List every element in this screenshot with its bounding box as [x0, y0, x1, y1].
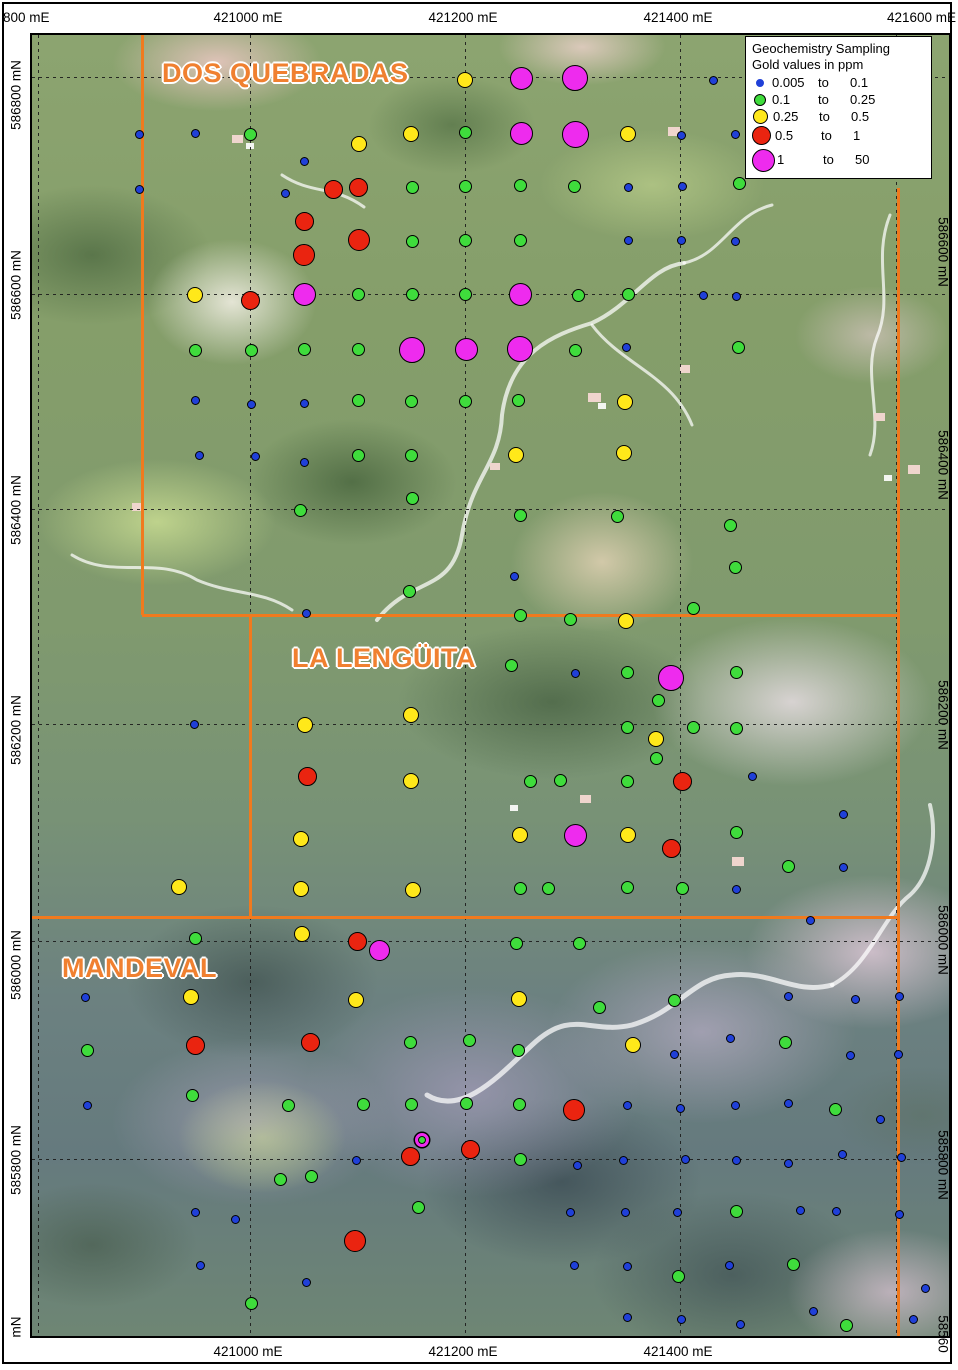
- sample-point-b[interactable]: [731, 1101, 740, 1110]
- sample-point-y[interactable]: [171, 879, 187, 895]
- sample-point-r[interactable]: [293, 244, 315, 266]
- sample-point-g[interactable]: [406, 492, 419, 505]
- sample-point-g[interactable]: [687, 602, 700, 615]
- sample-point-g[interactable]: [406, 288, 419, 301]
- sample-point-g[interactable]: [672, 1270, 685, 1283]
- sample-point-g[interactable]: [305, 1170, 318, 1183]
- sample-point-y[interactable]: [457, 72, 473, 88]
- sample-point-r[interactable]: [298, 767, 317, 786]
- sample-point-b[interactable]: [681, 1155, 690, 1164]
- sample-point-r[interactable]: [344, 1230, 366, 1252]
- axis-label-northing: mN: [9, 1317, 24, 1338]
- sample-point-y[interactable]: [297, 717, 313, 733]
- sample-point-b[interactable]: [300, 399, 309, 408]
- sample-point-y[interactable]: [403, 773, 419, 789]
- sample-point-g[interactable]: [729, 561, 742, 574]
- sample-point-b[interactable]: [670, 1050, 679, 1059]
- sample-point-b[interactable]: [623, 1101, 632, 1110]
- legend-subtitle: Gold values in ppm: [752, 57, 925, 73]
- axis-label-northing: 585800 mN: [936, 1130, 951, 1200]
- legend-to-value: 0.25: [850, 92, 875, 107]
- sample-point-b[interactable]: [677, 236, 686, 245]
- legend-to-word: to: [818, 75, 850, 90]
- sample-point-m[interactable]: [510, 122, 533, 145]
- sample-point-g[interactable]: [564, 613, 577, 626]
- sample-point-g[interactable]: [569, 344, 582, 357]
- axis-label-northing: 586600 mN: [936, 217, 951, 287]
- sample-point-y[interactable]: [293, 881, 309, 897]
- sample-point-y[interactable]: [294, 926, 310, 942]
- sample-point-y[interactable]: [351, 136, 367, 152]
- sample-point-b[interactable]: [784, 1159, 793, 1168]
- sample-point-g[interactable]: [621, 721, 634, 734]
- sample-point-g[interactable]: [513, 1098, 526, 1111]
- sample-point-y[interactable]: [403, 126, 419, 142]
- axis-label-northing: 586000 mN: [9, 930, 24, 1000]
- sample-point-g[interactable]: [282, 1099, 295, 1112]
- sample-point-b[interactable]: [851, 995, 860, 1004]
- sample-point-g[interactable]: [510, 937, 523, 950]
- sample-point-g[interactable]: [505, 659, 518, 672]
- sample-point-b[interactable]: [302, 609, 311, 618]
- legend-swatch-blue-icon: [756, 79, 764, 87]
- legend-row: 0.25 to 0.5: [752, 109, 925, 124]
- sample-point-y[interactable]: [512, 827, 528, 843]
- sample-point-m[interactable]: [455, 338, 478, 361]
- legend-swatch-green-icon: [754, 94, 766, 106]
- sample-point-g[interactable]: [622, 288, 635, 301]
- sample-point-g[interactable]: [652, 694, 665, 707]
- axis-label-easting: 421200 mE: [428, 1344, 497, 1359]
- claim-boundary-line: [141, 35, 144, 615]
- sample-point-b[interactable]: [838, 1150, 847, 1159]
- sample-point-g[interactable]: [514, 509, 527, 522]
- sample-point-g[interactable]: [294, 504, 307, 517]
- sample-point-g[interactable]: [724, 519, 737, 532]
- sample-point-b[interactable]: [83, 1101, 92, 1110]
- legend-to-value: 1: [853, 128, 860, 143]
- sample-point-m[interactable]: [399, 337, 425, 363]
- sample-point-r[interactable]: [186, 1036, 205, 1055]
- sample-point-g[interactable]: [554, 774, 567, 787]
- sample-point-g[interactable]: [730, 826, 743, 839]
- sample-point-b[interactable]: [191, 1208, 200, 1217]
- sample-point-g[interactable]: [405, 1098, 418, 1111]
- sample-point-y[interactable]: [618, 613, 634, 629]
- sample-point-g[interactable]: [787, 1258, 800, 1271]
- sample-point-r[interactable]: [349, 178, 368, 197]
- area-label: MANDEVAL: [62, 953, 217, 984]
- sample-point-r[interactable]: [662, 839, 681, 858]
- sample-point-g[interactable]: [352, 394, 365, 407]
- legend-to-word: to: [823, 152, 855, 167]
- sample-point-b[interactable]: [302, 1278, 311, 1287]
- sample-point-m[interactable]: [562, 121, 589, 148]
- legend-to-word: to: [819, 109, 851, 124]
- sample-point-y[interactable]: [348, 992, 364, 1008]
- sample-point-b[interactable]: [622, 343, 631, 352]
- sample-point-g[interactable]: [840, 1319, 853, 1332]
- sample-point-g[interactable]: [573, 937, 586, 950]
- sample-point-b[interactable]: [732, 1156, 741, 1165]
- sample-point-y[interactable]: [511, 991, 527, 1007]
- legend-from: 0.25: [773, 109, 819, 124]
- sample-point-b[interactable]: [191, 396, 200, 405]
- sample-point-y[interactable]: [620, 827, 636, 843]
- sample-point-g[interactable]: [459, 126, 472, 139]
- sample-point-m[interactable]: [293, 283, 316, 306]
- sample-point-g[interactable]: [687, 721, 700, 734]
- sample-point-y[interactable]: [617, 394, 633, 410]
- sample-point-g[interactable]: [460, 1097, 473, 1110]
- axis-label-easting: 421000 mE: [213, 1344, 282, 1359]
- grid-line-horizontal: [32, 509, 949, 510]
- area-label: LA LENGÜITA: [292, 643, 476, 674]
- sample-point-g[interactable]: [568, 180, 581, 193]
- sample-point-g[interactable]: [245, 1297, 258, 1310]
- sample-point-b[interactable]: [731, 130, 740, 139]
- sample-point-b[interactable]: [894, 1050, 903, 1059]
- grid-line-vertical: [38, 35, 39, 1336]
- sample-point-b[interactable]: [570, 1261, 579, 1270]
- legend-from: 0.1: [772, 92, 818, 107]
- sample-point-g[interactable]: [611, 510, 624, 523]
- sample-point-m[interactable]: [562, 65, 588, 91]
- axis-label-easting: 421400 mE: [643, 1344, 712, 1359]
- sample-point-g[interactable]: [514, 179, 527, 192]
- sample-point-g[interactable]: [357, 1098, 370, 1111]
- sample-point-g[interactable]: [245, 344, 258, 357]
- legend: Geochemistry Sampling Gold values in ppm…: [745, 36, 932, 179]
- legend-from: 0.005: [772, 75, 818, 90]
- sample-point-b[interactable]: [677, 1315, 686, 1324]
- sample-point-g[interactable]: [572, 289, 585, 302]
- sample-point-b[interactable]: [191, 129, 200, 138]
- sample-point-b[interactable]: [846, 1051, 855, 1060]
- sample-point-r[interactable]: [301, 1033, 320, 1052]
- map-canvas[interactable]: DOS QUEBRADASLA LENGÜITAMANDEVAL: [30, 33, 951, 1338]
- sample-point-g[interactable]: [403, 585, 416, 598]
- sample-point-b[interactable]: [732, 292, 741, 301]
- claim-boundary-line: [249, 615, 252, 917]
- legend-from: 1: [777, 152, 823, 167]
- sample-point-b[interactable]: [677, 131, 686, 140]
- axis-label-northing: 586000 mN: [936, 905, 951, 975]
- sample-point-g[interactable]: [404, 1036, 417, 1049]
- legend-row: 0.005 to 0.1: [752, 75, 925, 90]
- sample-point-b[interactable]: [190, 720, 199, 729]
- sample-point-b[interactable]: [895, 992, 904, 1001]
- sample-point-g[interactable]: [405, 449, 418, 462]
- sample-point-g[interactable]: [733, 177, 746, 190]
- geochemistry-map-page: { "colors":{"boundary_orange":"#f07a1e",…: [0, 0, 958, 1370]
- sample-point-r[interactable]: [324, 180, 343, 199]
- sample-point-y[interactable]: [187, 287, 203, 303]
- sample-point-g[interactable]: [621, 666, 634, 679]
- sample-point-g[interactable]: [459, 395, 472, 408]
- legend-from: 0.5: [775, 128, 821, 143]
- sample-point-g[interactable]: [514, 882, 527, 895]
- sample-point-g[interactable]: [782, 860, 795, 873]
- sample-point-b[interactable]: [731, 237, 740, 246]
- sample-point-g[interactable]: [668, 994, 681, 1007]
- axis-label-northing: 586400 mN: [936, 430, 951, 500]
- sample-point-r[interactable]: [348, 932, 367, 951]
- sample-point-g[interactable]: [829, 1103, 842, 1116]
- sample-point-b[interactable]: [510, 572, 519, 581]
- sample-point-g[interactable]: [244, 128, 257, 141]
- sample-point-g[interactable]: [81, 1044, 94, 1057]
- grid-line-horizontal: [32, 941, 949, 942]
- sample-point-r[interactable]: [241, 291, 260, 310]
- sample-point-b[interactable]: [300, 157, 309, 166]
- sample-point-g[interactable]: [524, 775, 537, 788]
- sample-point-s[interactable]: [415, 1133, 429, 1147]
- axis-label-easting: 421000 mE: [213, 10, 282, 25]
- sample-point-y[interactable]: [403, 707, 419, 723]
- legend-row: 1 to 50: [752, 147, 925, 172]
- sample-point-r[interactable]: [295, 212, 314, 231]
- sample-point-b[interactable]: [806, 916, 815, 925]
- sample-point-b[interactable]: [619, 1156, 628, 1165]
- sample-point-g[interactable]: [650, 752, 663, 765]
- legend-row: 0.5 to 1: [752, 126, 925, 145]
- sample-point-b[interactable]: [748, 772, 757, 781]
- map-imagery-trails: [32, 35, 951, 1338]
- sample-point-b[interactable]: [784, 1099, 793, 1108]
- sample-point-g[interactable]: [405, 395, 418, 408]
- axis-label-northing: 58560: [936, 1315, 951, 1353]
- sample-point-b[interactable]: [699, 291, 708, 300]
- axis-label-northing: 586400 mN: [9, 475, 24, 545]
- grid-line-horizontal: [32, 294, 949, 295]
- sample-point-b[interactable]: [676, 1104, 685, 1113]
- sample-point-b[interactable]: [839, 863, 848, 872]
- legend-title: Geochemistry Sampling: [752, 41, 925, 57]
- sample-point-g[interactable]: [412, 1201, 425, 1214]
- sample-point-b[interactable]: [621, 1208, 630, 1217]
- legend-to-value: 0.1: [850, 75, 868, 90]
- sample-point-b[interactable]: [251, 452, 260, 461]
- sample-point-m[interactable]: [510, 67, 533, 90]
- legend-swatch-magenta-icon: [752, 149, 775, 172]
- sample-point-m[interactable]: [369, 940, 390, 961]
- sample-point-m[interactable]: [564, 824, 587, 847]
- sample-point-y[interactable]: [620, 126, 636, 142]
- grid-line-horizontal: [32, 724, 949, 725]
- sample-point-g[interactable]: [186, 1089, 199, 1102]
- sample-point-b[interactable]: [623, 1313, 632, 1322]
- sample-point-b[interactable]: [135, 185, 144, 194]
- axis-label-easting: 421600 mE: [887, 10, 956, 25]
- sample-point-y[interactable]: [625, 1037, 641, 1053]
- axis-label-northing: 586200 mN: [9, 695, 24, 765]
- sample-point-m[interactable]: [658, 665, 684, 691]
- sample-point-y[interactable]: [405, 882, 421, 898]
- sample-point-g[interactable]: [512, 394, 525, 407]
- sample-point-g[interactable]: [730, 666, 743, 679]
- claim-boundary-line: [897, 188, 900, 1338]
- axis-label-easting: 421200 mE: [428, 10, 497, 25]
- sample-point-b[interactable]: [135, 130, 144, 139]
- sample-point-y[interactable]: [648, 731, 664, 747]
- sample-point-b[interactable]: [623, 1262, 632, 1271]
- sample-point-b[interactable]: [784, 992, 793, 1001]
- legend-to-value: 0.5: [851, 109, 869, 124]
- legend-row: 0.1 to 0.25: [752, 92, 925, 107]
- sample-point-g[interactable]: [459, 288, 472, 301]
- sample-point-g[interactable]: [621, 881, 634, 894]
- sample-point-b[interactable]: [726, 1034, 735, 1043]
- sample-point-b[interactable]: [809, 1307, 818, 1316]
- axis-label-northing: 586800 mN: [9, 60, 24, 130]
- grid-line-horizontal: [32, 1159, 949, 1160]
- area-label: DOS QUEBRADAS: [162, 58, 409, 89]
- legend-to-word: to: [818, 92, 850, 107]
- legend-swatch-red-icon: [752, 126, 771, 145]
- sample-point-b[interactable]: [247, 400, 256, 409]
- sample-point-b[interactable]: [796, 1206, 805, 1215]
- sample-point-g[interactable]: [621, 775, 634, 788]
- sample-point-b[interactable]: [876, 1115, 885, 1124]
- sample-point-m[interactable]: [507, 336, 533, 362]
- sample-point-m[interactable]: [509, 283, 532, 306]
- sample-point-b[interactable]: [573, 1161, 582, 1170]
- legend-to-word: to: [821, 128, 853, 143]
- legend-swatch-yellow-icon: [753, 109, 768, 124]
- sample-point-y[interactable]: [616, 445, 632, 461]
- sample-point-g[interactable]: [352, 343, 365, 356]
- sample-point-g[interactable]: [459, 180, 472, 193]
- sample-point-b[interactable]: [195, 451, 204, 460]
- sample-point-g[interactable]: [514, 234, 527, 247]
- sample-point-b[interactable]: [832, 1207, 841, 1216]
- sample-point-r[interactable]: [673, 772, 692, 791]
- sample-point-g[interactable]: [730, 1205, 743, 1218]
- sample-point-g[interactable]: [459, 234, 472, 247]
- sample-point-g[interactable]: [298, 343, 311, 356]
- sample-point-b[interactable]: [566, 1208, 575, 1217]
- sample-point-g[interactable]: [406, 235, 419, 248]
- sample-point-b[interactable]: [196, 1261, 205, 1270]
- sample-point-b[interactable]: [921, 1284, 930, 1293]
- sample-point-b[interactable]: [231, 1215, 240, 1224]
- sample-point-g[interactable]: [779, 1036, 792, 1049]
- sample-point-b[interactable]: [624, 183, 633, 192]
- sample-point-b[interactable]: [81, 993, 90, 1002]
- sample-point-g[interactable]: [189, 344, 202, 357]
- legend-to-value: 50: [855, 152, 869, 167]
- sample-point-r[interactable]: [348, 229, 370, 251]
- sample-point-b[interactable]: [709, 76, 718, 85]
- sample-point-b[interactable]: [281, 189, 290, 198]
- sample-point-y[interactable]: [183, 989, 199, 1005]
- sample-point-b[interactable]: [352, 1156, 361, 1165]
- sample-point-g[interactable]: [542, 882, 555, 895]
- axis-label-easting: 800 mE: [3, 10, 50, 25]
- sample-point-r[interactable]: [563, 1099, 585, 1121]
- sample-point-b[interactable]: [624, 236, 633, 245]
- axis-label-northing: 585800 mN: [9, 1125, 24, 1195]
- sample-point-b[interactable]: [673, 1208, 682, 1217]
- sample-point-b[interactable]: [732, 885, 741, 894]
- sample-point-b[interactable]: [736, 1320, 745, 1329]
- sample-point-g[interactable]: [352, 449, 365, 462]
- sample-point-g[interactable]: [189, 932, 202, 945]
- sample-point-b[interactable]: [725, 1261, 734, 1270]
- sample-point-g[interactable]: [676, 882, 689, 895]
- sample-point-g[interactable]: [514, 1153, 527, 1166]
- sample-point-b[interactable]: [895, 1210, 904, 1219]
- sample-point-b[interactable]: [909, 1315, 918, 1324]
- sample-point-b[interactable]: [897, 1153, 906, 1162]
- sample-point-b[interactable]: [678, 182, 687, 191]
- sample-point-g[interactable]: [514, 609, 527, 622]
- claim-boundary-line: [32, 916, 898, 919]
- sample-point-g[interactable]: [593, 1001, 606, 1014]
- sample-point-r[interactable]: [401, 1147, 420, 1166]
- axis-label-northing: 586200 mN: [936, 680, 951, 750]
- axis-label-easting: 421400 mE: [643, 10, 712, 25]
- sample-point-g[interactable]: [274, 1173, 287, 1186]
- sample-point-y[interactable]: [293, 831, 309, 847]
- sample-point-b[interactable]: [300, 458, 309, 467]
- sample-point-b[interactable]: [839, 810, 848, 819]
- sample-point-g[interactable]: [730, 722, 743, 735]
- sample-point-y[interactable]: [508, 447, 524, 463]
- sample-point-g[interactable]: [463, 1034, 476, 1047]
- sample-point-g[interactable]: [512, 1044, 525, 1057]
- sample-point-r[interactable]: [461, 1140, 480, 1159]
- sample-point-g[interactable]: [406, 181, 419, 194]
- sample-point-b[interactable]: [571, 669, 580, 678]
- sample-point-g[interactable]: [732, 341, 745, 354]
- axis-label-northing: 586600 mN: [9, 250, 24, 320]
- sample-point-g[interactable]: [352, 288, 365, 301]
